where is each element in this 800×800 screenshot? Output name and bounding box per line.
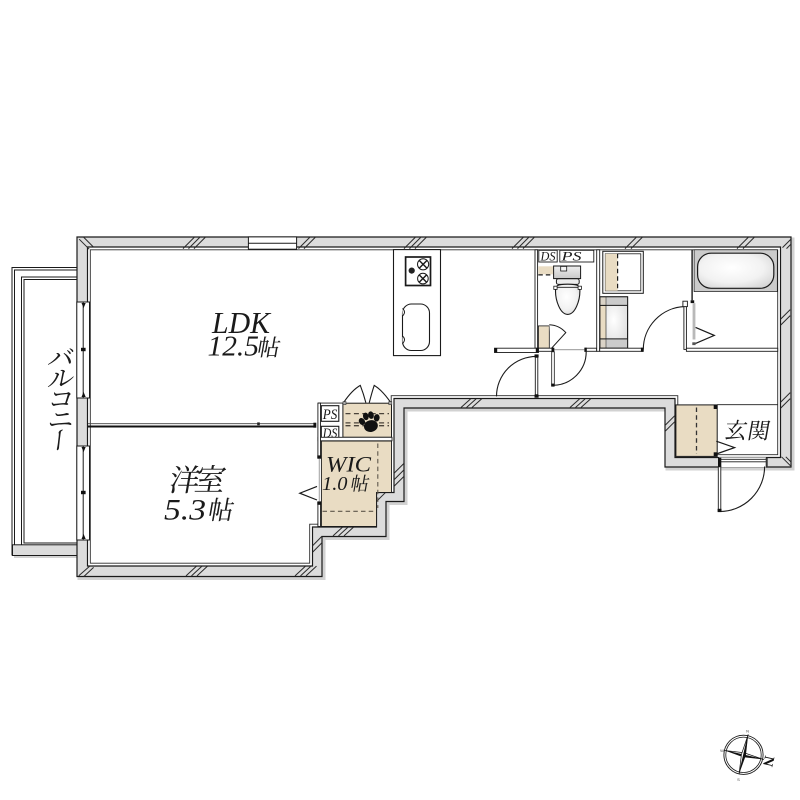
- svg-text:PS: PS: [560, 249, 582, 264]
- svg-text:DS: DS: [540, 249, 556, 264]
- svg-text:W: W: [720, 748, 724, 753]
- svg-text:12.5: 12.5: [208, 332, 260, 363]
- svg-text:5.3: 5.3: [164, 495, 206, 527]
- svg-text:N: N: [746, 728, 749, 733]
- svg-text:1.0: 1.0: [322, 473, 348, 495]
- svg-text:S: S: [737, 777, 740, 782]
- svg-text:PS: PS: [322, 407, 338, 423]
